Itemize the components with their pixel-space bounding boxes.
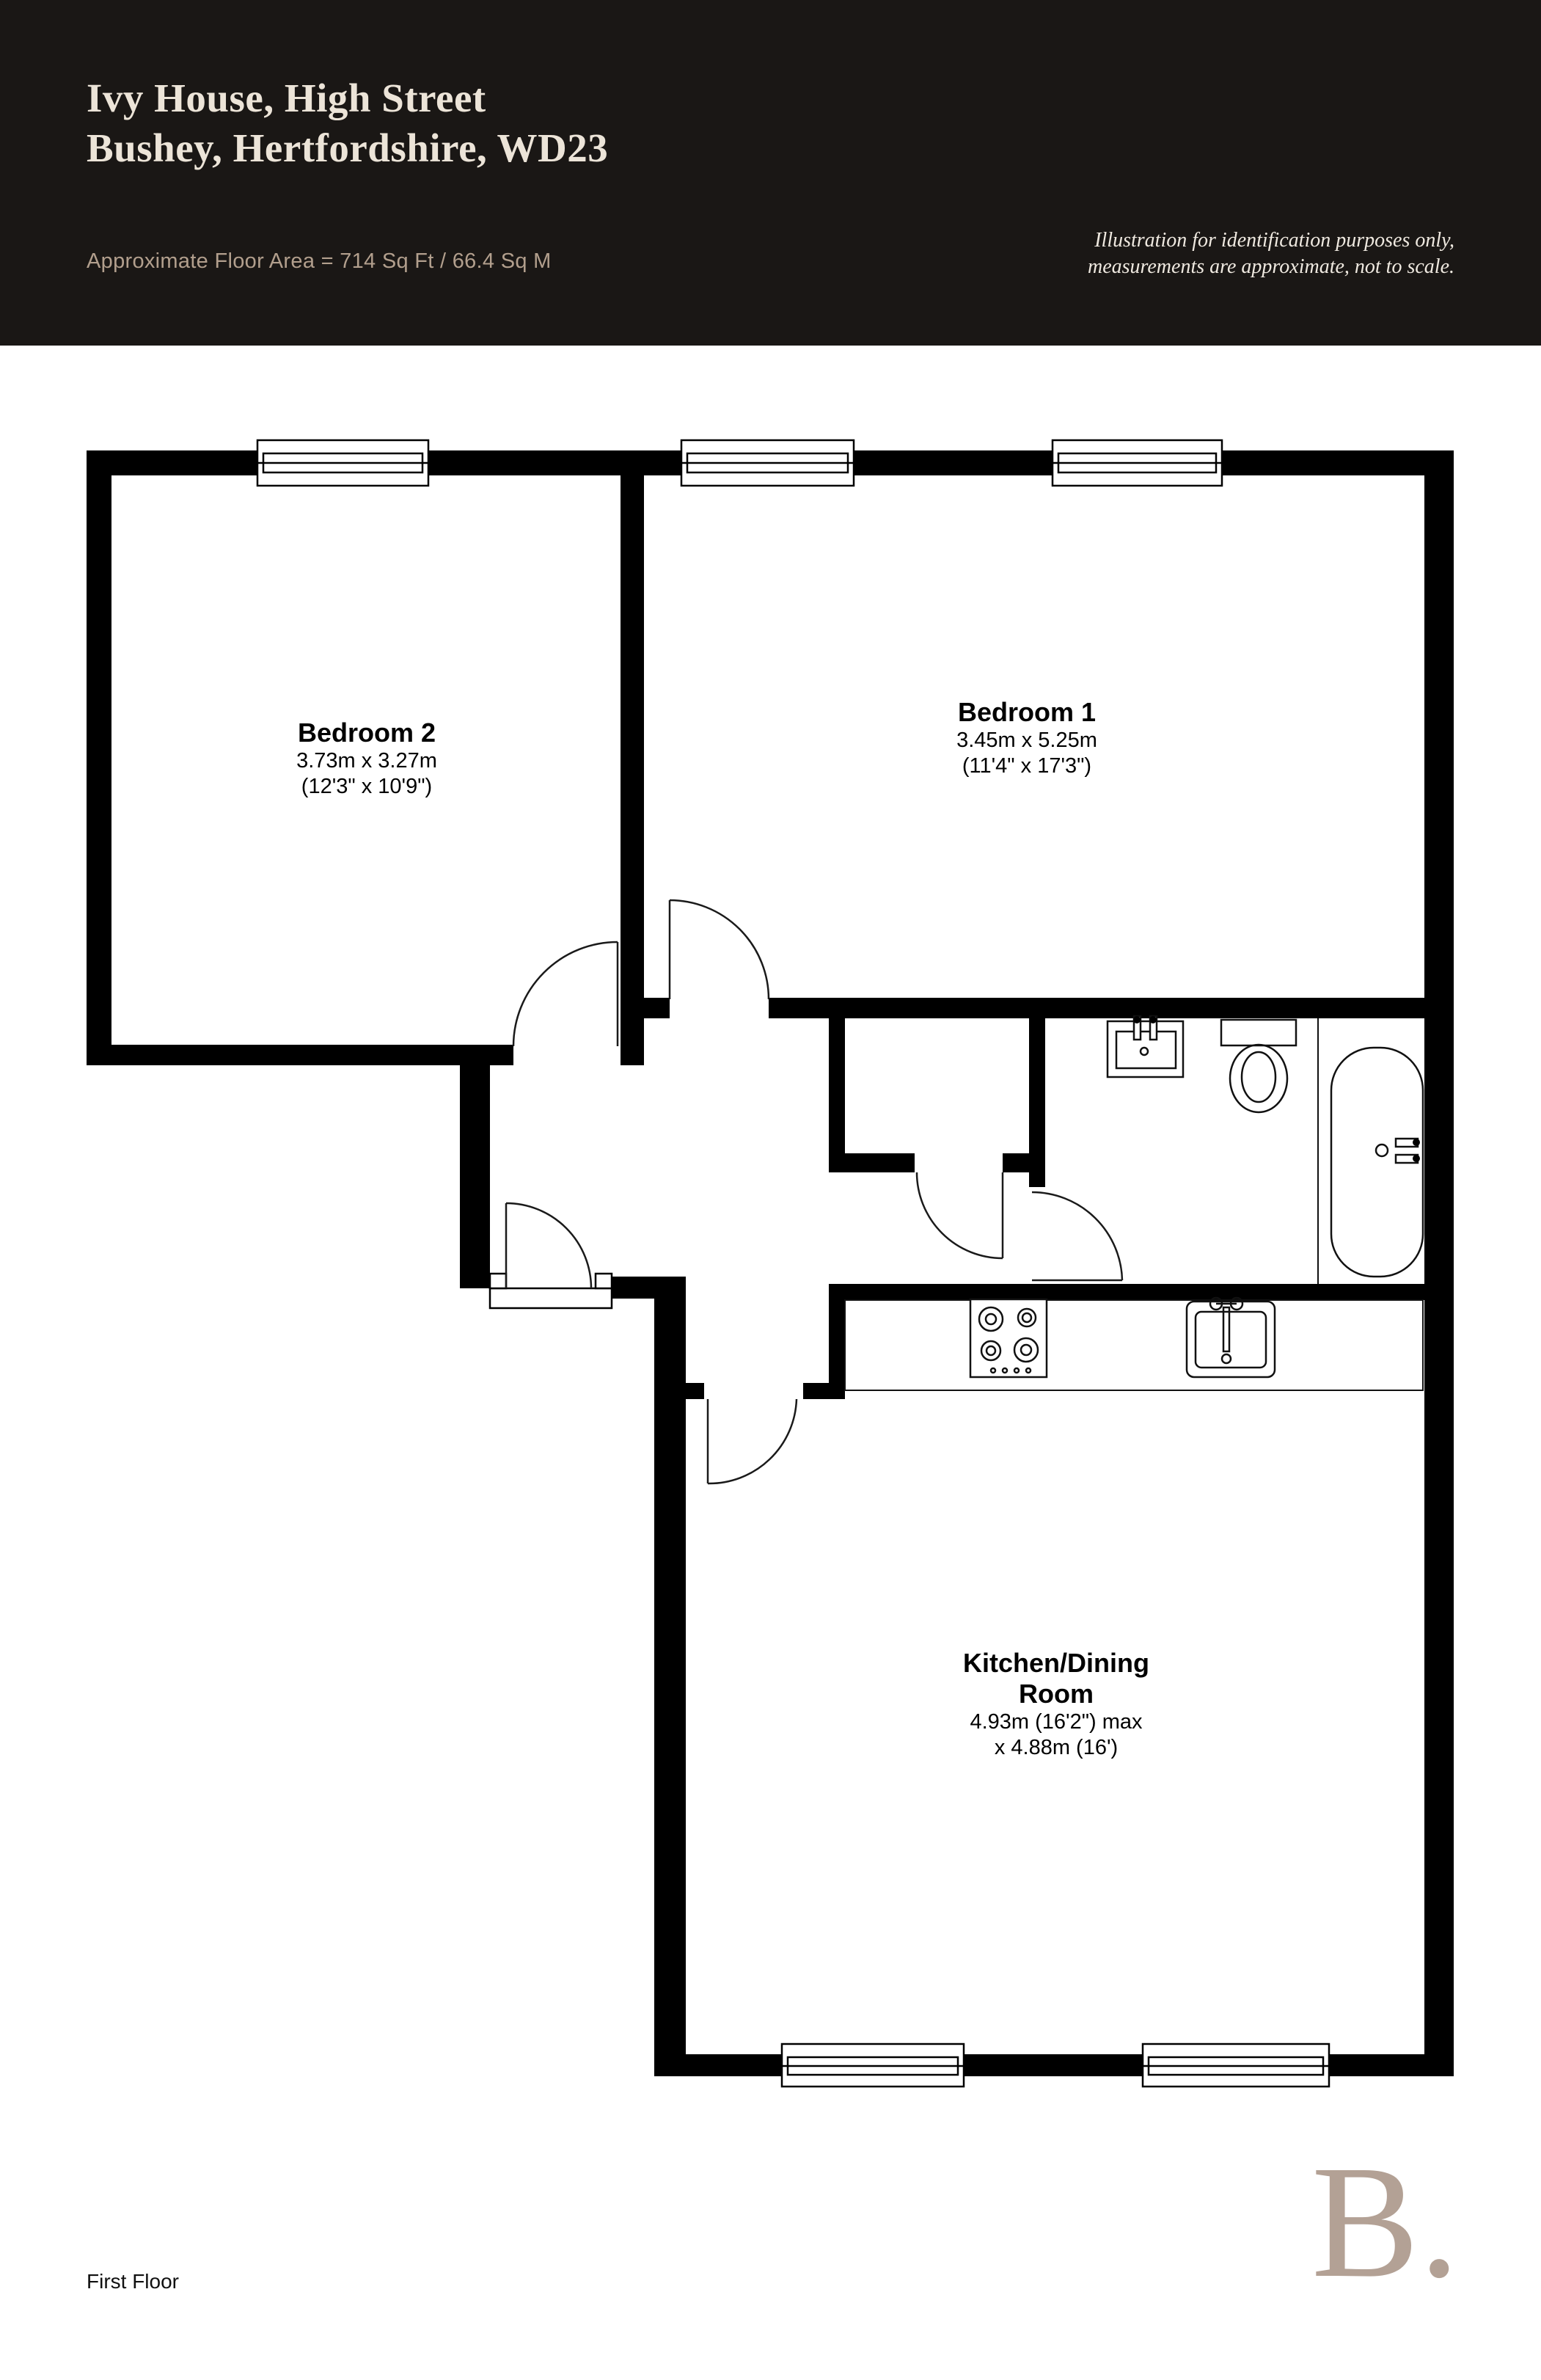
room-name: Bedroom 1: [956, 697, 1097, 728]
room-label-bedroom1: Bedroom 1 3.45m x 5.25m (11'4" x 17'3"): [956, 697, 1097, 779]
floor-plan: [0, 0, 1541, 2380]
door-icon-kitchen: [708, 1399, 797, 1483]
door-icon-inner-lobby: [917, 1172, 1003, 1258]
room-name: Bedroom 2: [296, 718, 437, 748]
kitchen-sink-icon: [1187, 1298, 1275, 1377]
window-icon: [257, 440, 428, 486]
window-icon: [782, 2044, 964, 2087]
room-name-line1: Kitchen/Dining: [963, 1648, 1149, 1679]
door-icon-bathroom: [1032, 1192, 1122, 1280]
window-icon: [681, 440, 854, 486]
door-icon-bedroom2: [513, 942, 618, 1046]
bathroom-sink-icon: [1108, 1016, 1183, 1077]
entrance-threshold-icon: [490, 1274, 612, 1308]
kitchen-counter: [845, 1300, 1423, 1390]
window-icon: [1143, 2044, 1329, 2087]
hob-icon: [970, 1299, 1047, 1377]
room-dim-imperial: (12'3" x 10'9"): [296, 774, 437, 800]
door-icon-bedroom1: [670, 900, 769, 999]
walls: [87, 450, 1454, 2076]
room-dim-imperial: (11'4" x 17'3"): [956, 753, 1097, 779]
room-name-line2: Room: [963, 1679, 1149, 1709]
room-dim-metric: 3.73m x 3.27m: [296, 748, 437, 774]
room-dim-metric: 3.45m x 5.25m: [956, 728, 1097, 753]
brand-logo: B.: [1311, 2141, 1460, 2302]
door-icon-entrance: [506, 1203, 591, 1288]
room-dim-line1: 4.93m (16'2") max: [963, 1709, 1149, 1735]
room-label-bedroom2: Bedroom 2 3.73m x 3.27m (12'3" x 10'9"): [296, 718, 437, 800]
window-icon: [1053, 440, 1222, 486]
room-dim-line2: x 4.88m (16'): [963, 1735, 1149, 1761]
bath-icon: [1331, 1048, 1423, 1277]
toilet-icon: [1221, 1020, 1296, 1112]
floorplan-page: Ivy House, High Street Bushey, Hertfords…: [0, 0, 1541, 2380]
room-label-kitchen: Kitchen/Dining Room 4.93m (16'2") max x …: [963, 1648, 1149, 1761]
floor-label: First Floor: [87, 2270, 179, 2293]
